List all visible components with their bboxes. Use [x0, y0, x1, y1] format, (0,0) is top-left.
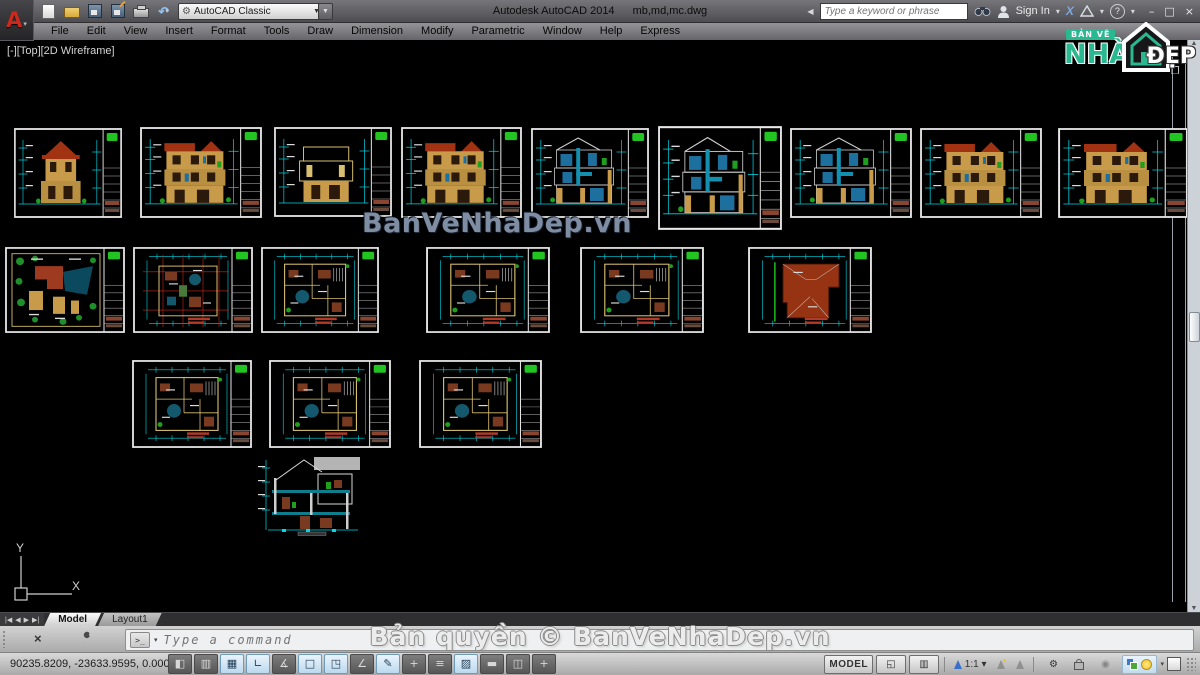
drawing-sheet-16-plan[interactable] — [132, 360, 252, 448]
drawing-sheet-13-plan[interactable] — [426, 247, 550, 333]
status-tray-dropdown-icon[interactable]: ▾ — [1160, 660, 1164, 668]
application-menu-button[interactable]: A ▾ — [0, 0, 34, 41]
menu-item-draw[interactable]: Draw — [298, 22, 342, 40]
ucs-y-label: Y — [16, 541, 24, 555]
window-controls: – □ × — [1149, 6, 1194, 17]
annotation-visibility-icon[interactable] — [993, 656, 1009, 673]
toggle-lineweight[interactable]: ≡ — [428, 654, 452, 674]
drawing-sheet-6-sectionBlue[interactable] — [658, 126, 782, 230]
command-line-bar: × >_ ▾ — [0, 625, 1200, 653]
status-toggles: ◧▥▦∟∡□◳∠✎+≡▨▬◫+ — [168, 654, 556, 674]
coordinates-readout: 90235.8209, -23633.9595, 0.0000 — [10, 658, 168, 670]
toolbar-lock-icon[interactable] — [1070, 656, 1088, 673]
scrollbar-thumb[interactable] — [1189, 312, 1200, 342]
toggle-quick-properties[interactable]: ▬ — [480, 654, 504, 674]
toggle-polar[interactable]: ∡ — [272, 654, 296, 674]
help-dropdown-icon[interactable]: ▾ — [1131, 7, 1135, 16]
vertical-scrollbar[interactable]: ▲ ▼ — [1187, 40, 1200, 612]
menu-item-edit[interactable]: Edit — [78, 22, 115, 40]
drawing-sheet-5-sectionBlue[interactable] — [531, 128, 649, 218]
save-as-icon[interactable] — [109, 4, 126, 19]
command-drag-handle[interactable] — [2, 630, 6, 648]
command-close-icon[interactable]: × — [34, 631, 42, 646]
menu-item-parametric[interactable]: Parametric — [462, 22, 533, 40]
toggle-snap[interactable]: ▥ — [194, 654, 218, 674]
hardware-status-group — [1122, 655, 1157, 674]
tab-layout1[interactable]: Layout1 — [98, 613, 162, 626]
drawing-sheet-2-elevationB[interactable] — [140, 127, 262, 218]
maximize-icon[interactable]: □ — [1164, 6, 1174, 17]
first-tab-icon[interactable]: |◀ — [5, 616, 12, 624]
ucs-x-label: X — [72, 579, 80, 593]
close-icon[interactable]: × — [1185, 6, 1194, 17]
drawing-sheet-17-plan[interactable] — [269, 360, 391, 448]
prev-tab-icon[interactable]: ◀ — [15, 616, 20, 624]
toggle-transparency[interactable]: ▨ — [454, 654, 478, 674]
drawing-sheet-14-plan[interactable] — [580, 247, 704, 333]
menu-item-file[interactable]: File — [42, 22, 78, 40]
auto-annotation-scale-icon[interactable] — [1012, 656, 1028, 673]
drawing-sheet-8-elevationB[interactable] — [920, 128, 1042, 218]
isolate-objects-icon[interactable] — [1141, 659, 1152, 670]
toggle-ducs[interactable]: ✎ — [376, 654, 400, 674]
drawing-sheet-4-elevationB[interactable] — [401, 127, 522, 218]
quick-access-toolbar: ↶▾ ↷▾ — [40, 2, 195, 20]
toggle-dynamic-input[interactable]: + — [402, 654, 426, 674]
menu-item-help[interactable]: Help — [591, 22, 632, 40]
menu-item-tools[interactable]: Tools — [255, 22, 299, 40]
workspace-extra-dropdown[interactable]: ▼ — [318, 3, 333, 20]
infocenter: ◀ Sign In ▾ X ▾ ? ▾ – □ × — [807, 0, 1200, 22]
help-icon[interactable]: ? — [1110, 4, 1125, 19]
workspace-dropdown[interactable]: ⚙ AutoCAD Classic ▼ — [178, 3, 324, 20]
next-tab-icon[interactable]: ▶ — [24, 616, 29, 624]
tab-model[interactable]: Model — [44, 613, 101, 626]
drawing-sheet-3-facade[interactable] — [274, 127, 392, 217]
navigation-wheel-icon[interactable]: ◉ — [1091, 656, 1119, 673]
open-file-icon[interactable] — [63, 4, 80, 19]
menu-item-dimension[interactable]: Dimension — [342, 22, 412, 40]
autocad-logo-icon: A — [6, 8, 22, 32]
drawing-sheet-11-planRed[interactable] — [133, 247, 253, 333]
chevron-down-icon: ▾ — [23, 20, 27, 28]
infocenter-collapse-icon[interactable]: ◀ — [807, 7, 813, 16]
menu-item-modify[interactable]: Modify — [412, 22, 462, 40]
annotation-scale-icon — [954, 660, 962, 669]
drawing-sheet-10-siteplan[interactable] — [5, 247, 125, 333]
last-tab-icon[interactable]: ▶| — [32, 616, 39, 624]
toggle-ortho[interactable]: ∟ — [246, 654, 270, 674]
tab-navigation: |◀ ◀ ▶ ▶| — [0, 613, 44, 626]
user-icon — [997, 5, 1010, 18]
toggle-3d-osnap[interactable]: ◳ — [324, 654, 348, 674]
menu-item-window[interactable]: Window — [534, 22, 591, 40]
toggle-annotation-monitor[interactable]: + — [532, 654, 556, 674]
plot-icon[interactable] — [132, 4, 149, 19]
toggle-infer-constraints[interactable]: ◧ — [168, 654, 192, 674]
drawing-sheet-12-plan[interactable] — [261, 247, 379, 333]
search-input[interactable] — [820, 3, 968, 20]
drawing-sheet-1-elevation[interactable] — [14, 128, 122, 218]
wrench-icon[interactable] — [80, 631, 95, 646]
ucs-icon: Y X — [6, 540, 84, 606]
clean-screen-icon[interactable] — [1167, 657, 1181, 671]
status-bar: 90235.8209, -23633.9595, 0.0000 ◧▥▦∟∡□◳∠… — [0, 652, 1200, 675]
toggle-otrack[interactable]: ∠ — [350, 654, 374, 674]
banvenhadep-logo: BẢN VẼ NHÀ ĐẸP — [1064, 22, 1198, 80]
binoculars-icon[interactable] — [974, 5, 991, 17]
document-title: mb,md,mc.dwg — [633, 5, 708, 17]
menu-item-view[interactable]: View — [115, 22, 157, 40]
toggle-selection-cycling[interactable]: ◫ — [506, 654, 530, 674]
new-file-icon[interactable] — [40, 4, 57, 19]
hardware-acceleration-icon[interactable] — [1127, 659, 1137, 669]
a360-dropdown-icon[interactable]: ▾ — [1100, 7, 1104, 16]
layout-tab-bar: |◀ ◀ ▶ ▶| Model Layout1 — [0, 612, 1200, 626]
menu-item-format[interactable]: Format — [202, 22, 255, 40]
drawing-sheet-18-plan[interactable] — [419, 360, 542, 448]
save-icon[interactable] — [86, 4, 103, 19]
sign-in-button[interactable]: Sign In — [1016, 5, 1050, 17]
command-input-field[interactable]: >_ ▾ — [125, 629, 1194, 651]
status-right-cluster: MODEL ◱ ▥ 1:1 ▾ ⚙ ◉ ▾ — [824, 655, 1196, 674]
exchange-apps-icon[interactable]: X — [1066, 4, 1074, 18]
toggle-grid[interactable]: ▦ — [220, 654, 244, 674]
command-prompt-icon[interactable]: >_ — [130, 632, 150, 648]
logo-dep-text: ĐẸP — [1146, 44, 1196, 69]
workspace-switching-icon[interactable]: ⚙ — [1039, 656, 1067, 673]
a360-icon[interactable] — [1080, 5, 1094, 17]
drawing-sheet-9-elevationB[interactable] — [1058, 128, 1188, 218]
model-space-canvas[interactable]: [-][Top][2D Wireframe] BanVeNhaDep.vn Y … — [0, 40, 1200, 612]
minimize-icon[interactable]: – — [1149, 6, 1155, 17]
menu-item-insert[interactable]: Insert — [156, 22, 202, 40]
resize-grip[interactable] — [1186, 657, 1196, 671]
menu-item-express[interactable]: Express — [631, 22, 689, 40]
quick-view-layouts-icon[interactable]: ◱ — [876, 655, 906, 674]
sign-in-dropdown-icon[interactable]: ▾ — [1056, 7, 1060, 16]
command-history-icon[interactable]: ▾ — [154, 636, 158, 644]
drawing-sheet-19-sectionOpen[interactable] — [258, 452, 385, 536]
workspace-label: AutoCAD Classic — [194, 6, 310, 17]
model-space-button[interactable]: MODEL — [824, 655, 873, 674]
annotation-scale-value: 1:1 — [965, 659, 979, 670]
gear-icon: ⚙ — [182, 6, 191, 17]
drawing-sheet-7-sectionBlue[interactable] — [790, 128, 912, 218]
app-title: Autodesk AutoCAD 2014 — [493, 5, 615, 17]
undo-icon[interactable]: ↶▾ — [155, 4, 172, 19]
scroll-down-icon[interactable]: ▼ — [1191, 605, 1198, 612]
quick-view-drawings-icon[interactable]: ▥ — [909, 655, 939, 674]
command-input[interactable] — [162, 632, 1189, 648]
menu-bar: FileEditViewInsertFormatToolsDrawDimensi… — [0, 22, 1200, 40]
drawing-sheet-15-roofplan[interactable] — [748, 247, 872, 333]
viewport-controls-label[interactable]: [-][Top][2D Wireframe] — [7, 45, 115, 57]
toggle-osnap[interactable]: □ — [298, 654, 322, 674]
autocad-window: ↶▾ ↷▾ ⚙ AutoCAD Classic ▼ ▼ Autodesk Aut… — [0, 0, 1200, 675]
annotation-scale-button[interactable]: 1:1 ▾ — [950, 656, 991, 673]
title-bar: ↶▾ ↷▾ ⚙ AutoCAD Classic ▼ ▼ Autodesk Aut… — [0, 0, 1200, 23]
